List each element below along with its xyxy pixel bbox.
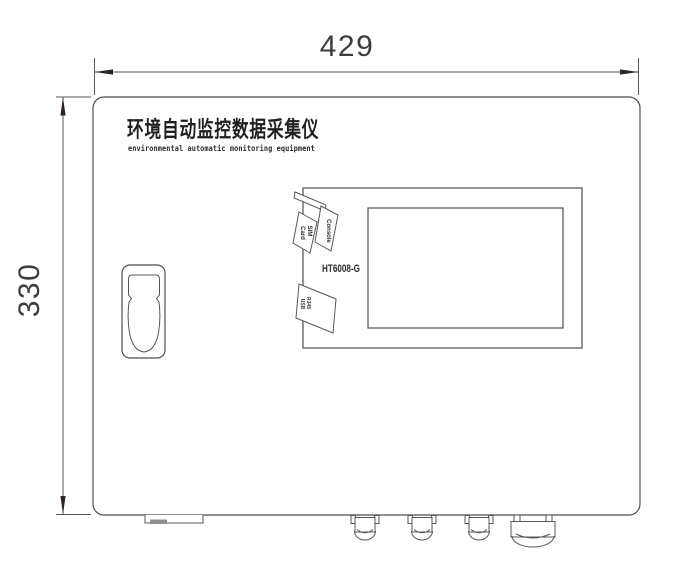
device-title-cn: 环境自动监控数据采集仪 [127,112,319,144]
arrowhead-bottom-icon [60,496,65,515]
console-port-label: Console [325,219,331,243]
mount-tab-foot [150,520,167,525]
device-title-en: environmental automatic monitoring equip… [128,144,315,153]
model-label: HT6008-G [322,263,360,275]
engineering-drawing: 429 330 Console SIM C [0,0,692,565]
cable-gland-1 [351,516,379,541]
cable-gland-2 [408,516,436,541]
display-screen [368,208,563,328]
door-handle [122,265,165,358]
dimension-height-label: 330 [13,263,46,318]
dimension-width-label: 429 [320,30,375,63]
arrowhead-right-icon [620,69,639,74]
cable-gland-3 [465,516,493,541]
controller-module: Console SIM Card RJ45 USB HT6008-G [293,188,582,348]
bottom-mount-tab [145,515,203,524]
sim-card-label-line2: Card [299,226,305,240]
drawing-canvas: 429 330 Console SIM C [0,0,692,565]
dimension-height: 330 [13,97,91,515]
arrowhead-top-icon [60,97,65,116]
dimension-width: 429 [95,30,639,95]
cable-gland-4-large [511,515,555,547]
arrowhead-left-icon [95,69,114,74]
sim-card-label-line1: SIM [306,226,312,237]
usb-label: USB [299,299,305,310]
